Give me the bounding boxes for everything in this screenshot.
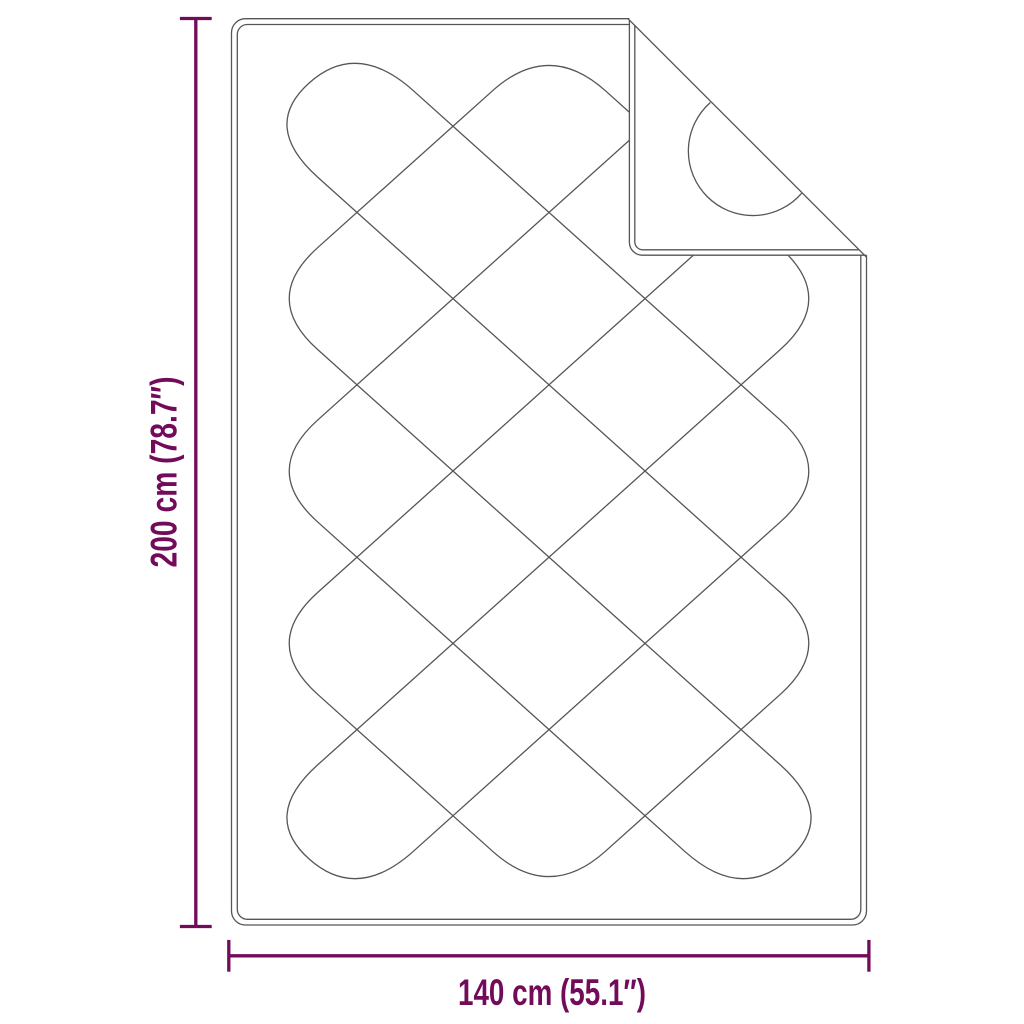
svg-text:200 cm (78.7″): 200 cm (78.7″): [144, 377, 185, 568]
svg-text:140 cm (55.1″): 140 cm (55.1″): [458, 972, 646, 1013]
